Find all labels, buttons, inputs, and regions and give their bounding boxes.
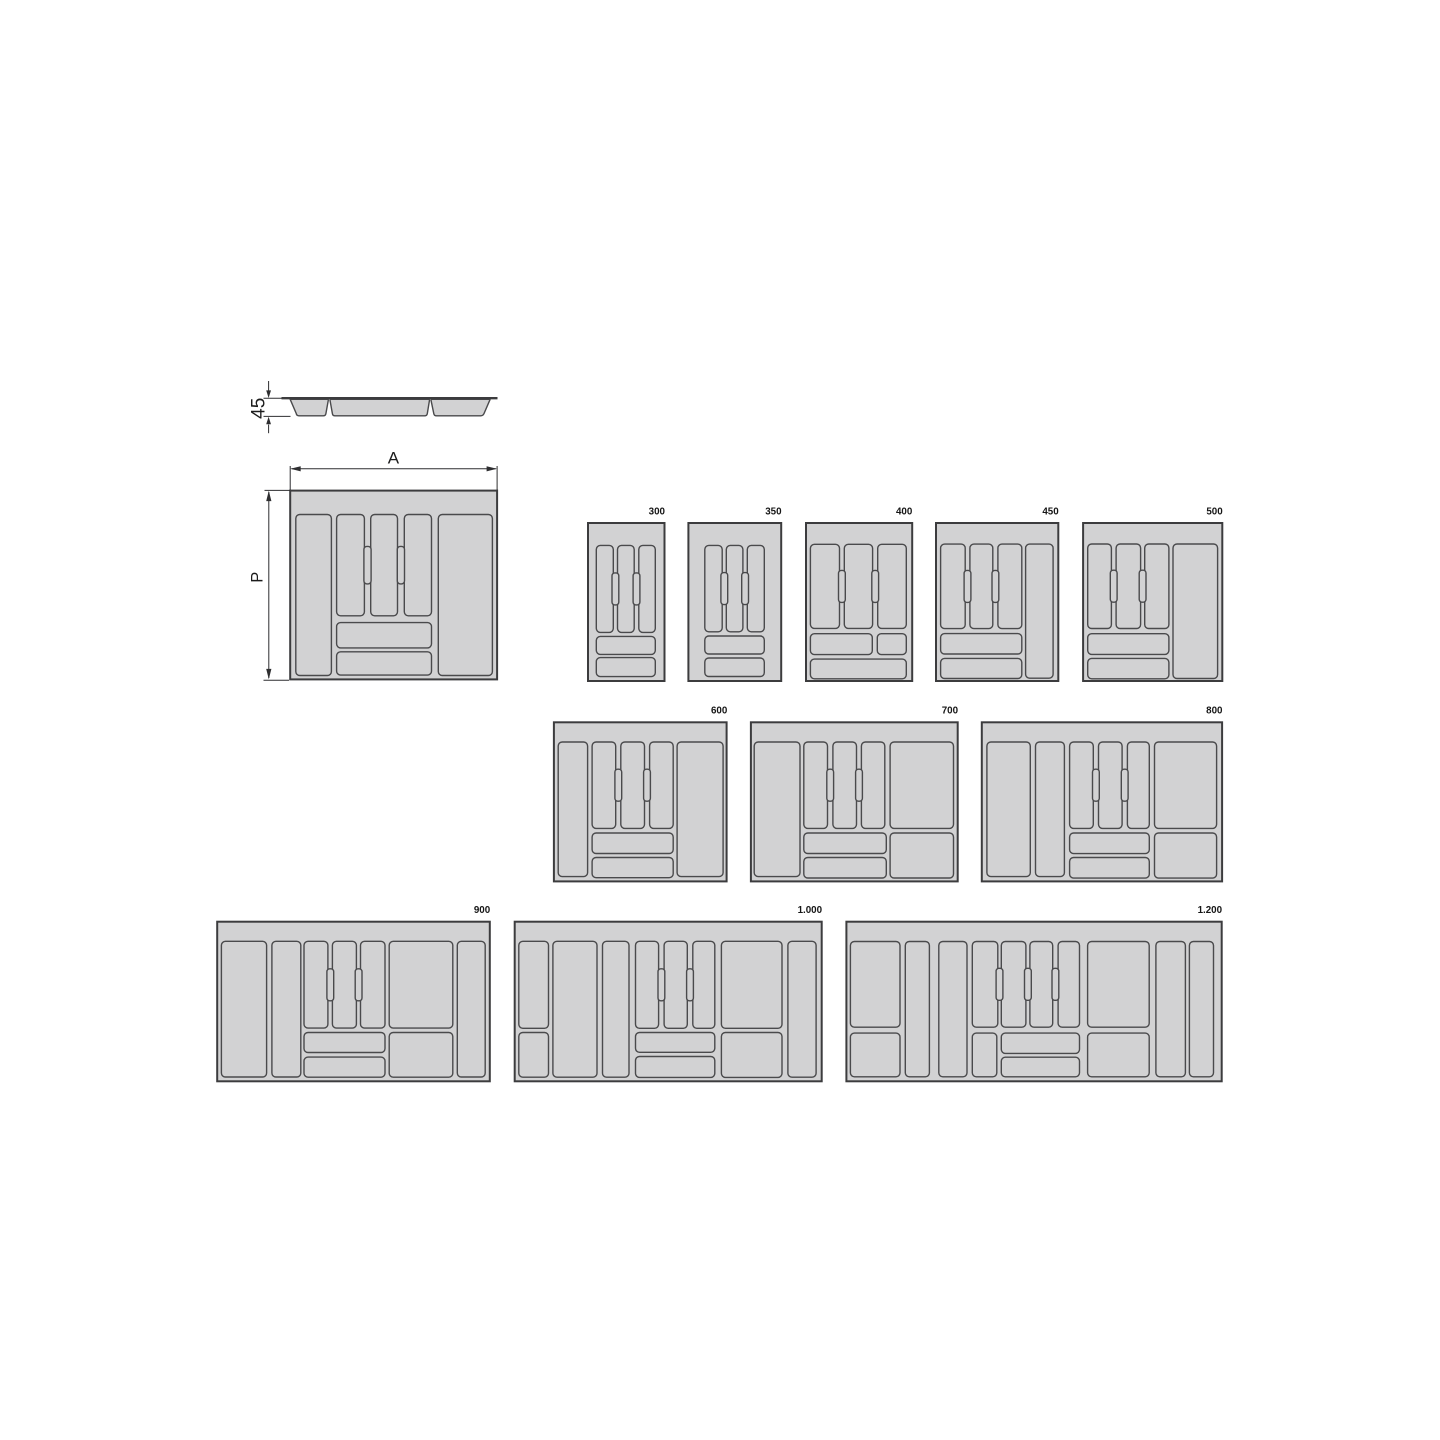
svg-text:700: 700 <box>942 706 959 717</box>
svg-text:350: 350 <box>765 506 782 517</box>
svg-text:500: 500 <box>1206 506 1223 517</box>
svg-text:A: A <box>388 449 400 468</box>
svg-text:800: 800 <box>1206 706 1223 717</box>
svg-text:1.200: 1.200 <box>1198 905 1223 916</box>
svg-text:900: 900 <box>474 905 491 916</box>
svg-text:P: P <box>249 572 267 583</box>
svg-text:1.000: 1.000 <box>798 905 823 916</box>
svg-text:300: 300 <box>649 506 666 517</box>
svg-text:450: 450 <box>1042 506 1059 517</box>
svg-text:45: 45 <box>248 398 269 419</box>
svg-text:600: 600 <box>711 706 728 717</box>
svg-text:400: 400 <box>896 506 913 517</box>
